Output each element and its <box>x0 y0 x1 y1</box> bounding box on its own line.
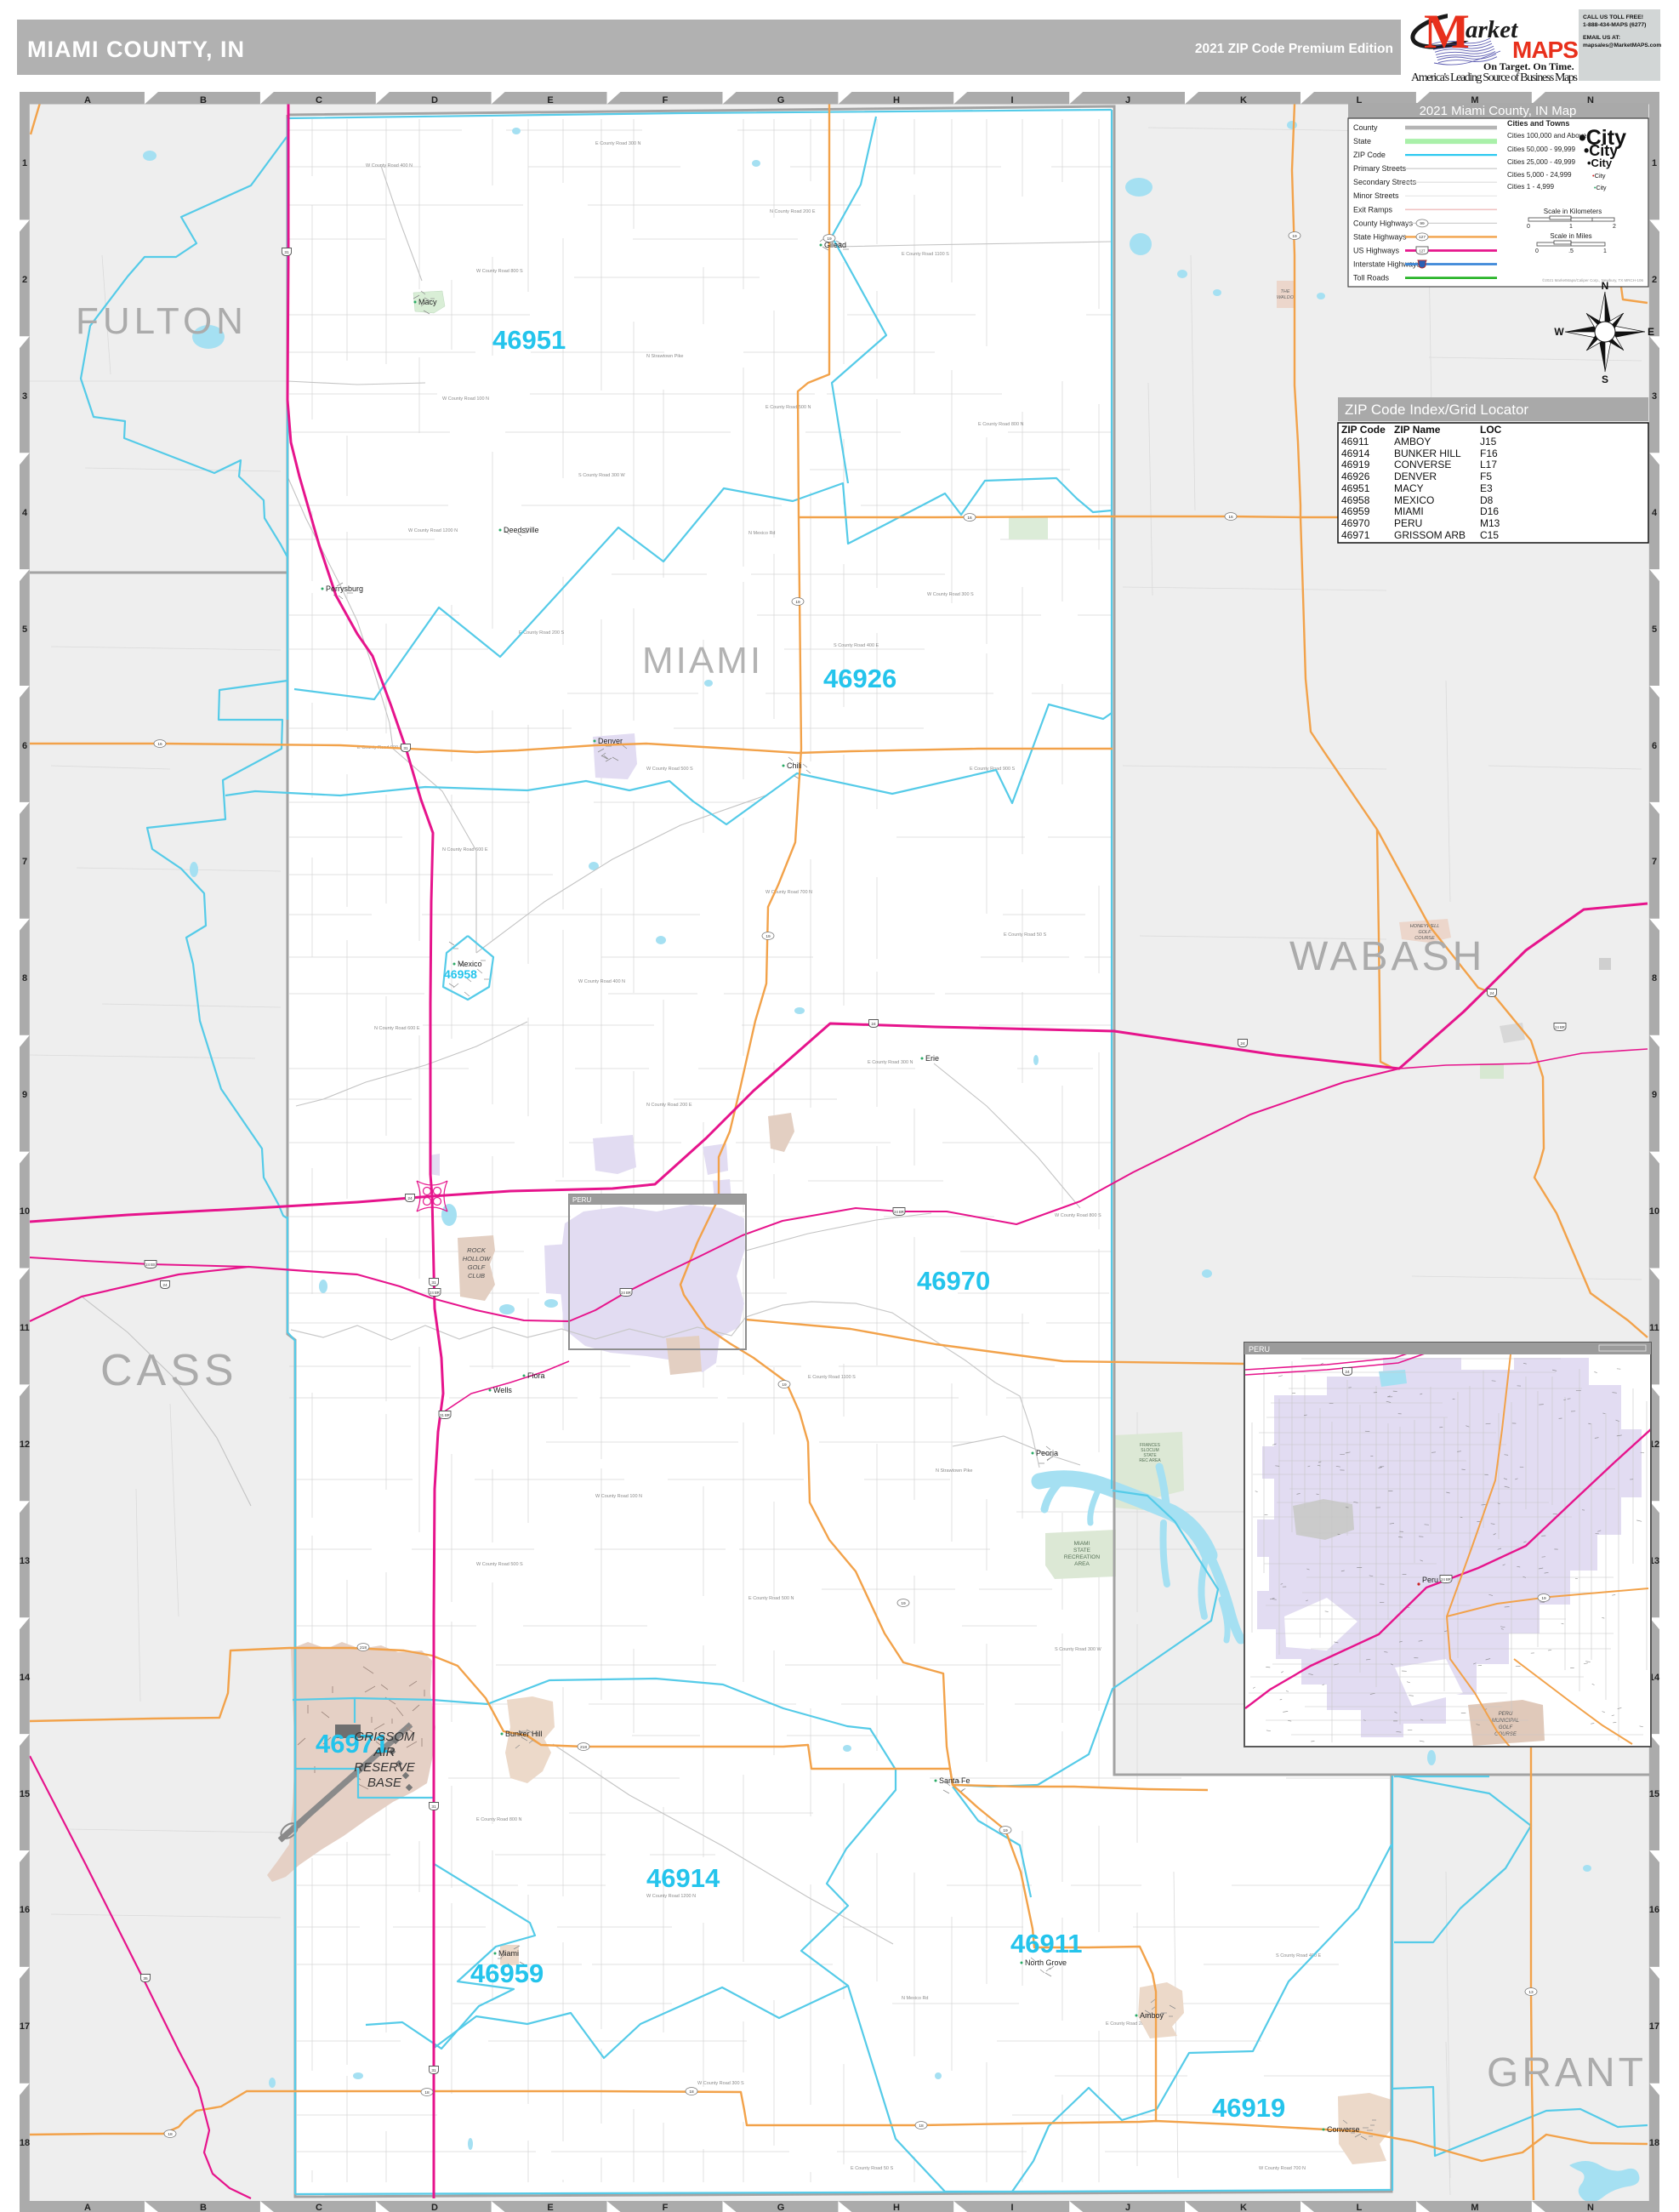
svg-text:A: A <box>84 95 91 105</box>
svg-text:46919: 46919 <box>1212 2093 1285 2123</box>
svg-text:13: 13 <box>20 1556 30 1566</box>
svg-text:G: G <box>777 2203 785 2212</box>
svg-text:24 BR: 24 BR <box>1441 1577 1451 1582</box>
svg-text:W County Road 100 N: W County Road 100 N <box>442 396 489 402</box>
svg-text:19: 19 <box>766 934 771 939</box>
svg-text:WALDO: WALDO <box>1277 295 1295 300</box>
svg-text:•City: •City <box>1587 157 1613 169</box>
svg-text:E County Road 50 S: E County Road 50 S <box>851 2166 893 2171</box>
svg-text:Minor Streets: Minor Streets <box>1353 191 1399 200</box>
svg-text:BUNKER HILL: BUNKER HILL <box>1394 448 1461 459</box>
svg-text:US Highways: US Highways <box>1353 247 1400 255</box>
svg-text:E County Road 300 N: E County Road 300 N <box>595 141 641 146</box>
svg-text:THE: THE <box>1281 289 1290 294</box>
svg-text:W County Road 500 S: W County Road 500 S <box>476 1562 523 1567</box>
svg-text:N County Road 200 E: N County Road 200 E <box>770 209 816 214</box>
svg-text:REC AREA: REC AREA <box>1139 1458 1161 1463</box>
svg-text:46911: 46911 <box>1341 436 1369 448</box>
svg-text:17: 17 <box>1649 2021 1659 2032</box>
svg-text:G: G <box>777 95 785 105</box>
svg-text:18: 18 <box>168 2132 173 2137</box>
svg-text:Mexico: Mexico <box>458 960 482 968</box>
svg-text:1: 1 <box>1652 158 1657 168</box>
svg-text:Cities and Towns: Cities and Towns <box>1507 119 1569 128</box>
svg-text:.5: .5 <box>1568 248 1574 254</box>
svg-text:24: 24 <box>407 1196 413 1201</box>
svg-text:14: 14 <box>20 1673 31 1683</box>
svg-text:3: 3 <box>1652 391 1657 402</box>
svg-text:J: J <box>1125 95 1130 105</box>
svg-text:19: 19 <box>1292 234 1297 239</box>
svg-text:W County Road 700 N: W County Road 700 N <box>766 890 812 895</box>
svg-text:4: 4 <box>1652 508 1658 518</box>
svg-text:19: 19 <box>795 600 800 605</box>
svg-text:W County Road 100 N: W County Road 100 N <box>595 1494 642 1499</box>
svg-text:ZIP Name: ZIP Name <box>1394 424 1441 436</box>
svg-text:GRISSOM: GRISSOM <box>355 1730 415 1744</box>
svg-text:46951: 46951 <box>492 325 566 355</box>
svg-text:31: 31 <box>431 1804 436 1810</box>
svg-text:Scale in Miles: Scale in Miles <box>1550 232 1591 240</box>
svg-text:1: 1 <box>22 158 27 168</box>
svg-text:E County Road 800 N: E County Road 800 N <box>978 422 1024 427</box>
svg-text:8: 8 <box>1652 973 1657 983</box>
svg-text:Denver: Denver <box>598 737 623 745</box>
svg-text:2: 2 <box>1613 224 1616 230</box>
svg-text:0: 0 <box>1535 248 1539 254</box>
svg-text:C15: C15 <box>1480 529 1499 541</box>
svg-text:31: 31 <box>431 1280 436 1286</box>
svg-text:C: C <box>316 2203 322 2212</box>
svg-text:46951: 46951 <box>1341 482 1370 494</box>
svg-text:Macy: Macy <box>418 298 437 306</box>
svg-text:46970: 46970 <box>917 1266 990 1296</box>
svg-text:19: 19 <box>901 1601 906 1606</box>
svg-text:6: 6 <box>22 741 27 751</box>
svg-text:WABASH: WABASH <box>1289 934 1485 979</box>
svg-text:A: A <box>84 2203 91 2212</box>
svg-text:Peru: Peru <box>1422 1576 1438 1584</box>
svg-text:18: 18 <box>1649 2138 1659 2148</box>
svg-text:46971: 46971 <box>1341 529 1370 541</box>
svg-text:24 BR: 24 BR <box>1555 1025 1565 1029</box>
svg-text:W County Road 500 S: W County Road 500 S <box>646 767 693 772</box>
svg-text:S County Road 300 W: S County Road 300 W <box>578 473 626 478</box>
svg-text:ZIP Code: ZIP Code <box>1353 151 1386 159</box>
svg-text:35: 35 <box>143 1976 148 1981</box>
svg-text:10: 10 <box>1649 1206 1659 1217</box>
svg-text:N County Road 200 E: N County Road 200 E <box>646 1103 692 1108</box>
svg-text:N: N <box>1587 2203 1594 2212</box>
svg-text:16: 16 <box>1228 515 1233 520</box>
svg-text:24 BR: 24 BR <box>621 1291 631 1295</box>
svg-text:16: 16 <box>157 742 162 747</box>
svg-text:Amboy: Amboy <box>1140 2011 1164 2020</box>
svg-text:B: B <box>200 95 207 105</box>
svg-text:W: W <box>1554 326 1564 338</box>
svg-text:Chili: Chili <box>787 761 802 770</box>
svg-text:5: 5 <box>22 624 27 635</box>
svg-text:D16: D16 <box>1480 505 1499 517</box>
svg-text:E County Road 50 S: E County Road 50 S <box>1004 932 1046 938</box>
svg-text:31: 31 <box>284 250 289 255</box>
svg-text:W County Road 300 S: W County Road 300 S <box>697 2081 744 2086</box>
svg-text:24: 24 <box>1489 991 1494 996</box>
svg-text:AIR: AIR <box>373 1745 395 1759</box>
svg-text:BASE: BASE <box>367 1776 402 1790</box>
svg-text:K: K <box>1240 95 1247 105</box>
svg-text:MACY: MACY <box>1394 482 1424 494</box>
svg-text:W County Road 1200 N: W County Road 1200 N <box>646 1894 696 1899</box>
svg-text:46911: 46911 <box>1010 1929 1083 1958</box>
svg-text:•City: •City <box>1592 172 1606 180</box>
svg-text:North Grove: North Grove <box>1025 1958 1067 1967</box>
svg-text:J15: J15 <box>1480 436 1497 448</box>
svg-text:N: N <box>1602 280 1609 292</box>
svg-text:E County Road 300 N: E County Road 300 N <box>868 1060 913 1065</box>
svg-text:Bunker Hill: Bunker Hill <box>505 1730 543 1738</box>
svg-text:E County Road 800 N: E County Road 800 N <box>476 1817 522 1822</box>
svg-text:MIAMI: MIAMI <box>642 640 763 681</box>
svg-text:Perrysburg: Perrysburg <box>326 584 363 593</box>
svg-text:PERU: PERU <box>572 1196 591 1204</box>
svg-text:HOLLOW: HOLLOW <box>463 1255 491 1263</box>
svg-text:E County Road 500 N: E County Road 500 N <box>766 405 811 410</box>
svg-text:46926: 46926 <box>1341 470 1370 482</box>
svg-text:24 BR: 24 BR <box>894 1210 904 1214</box>
svg-text:D: D <box>431 95 438 105</box>
svg-text:1: 1 <box>1603 248 1607 254</box>
svg-text:GOLF: GOLF <box>468 1263 486 1271</box>
svg-text:E: E <box>1648 326 1654 338</box>
svg-text:D: D <box>431 2203 438 2212</box>
svg-text:CALL US TOLL FREE!: CALL US TOLL FREE! <box>1583 14 1643 20</box>
svg-text:4: 4 <box>22 508 28 518</box>
svg-text:S County Road 300 W: S County Road 300 W <box>1055 1647 1102 1652</box>
svg-text:L17: L17 <box>1480 459 1497 470</box>
svg-text:•City: •City <box>1594 185 1607 191</box>
svg-text:18: 18 <box>689 2089 694 2095</box>
svg-text:2021 Miami County, IN Map: 2021 Miami County, IN Map <box>1420 104 1577 118</box>
svg-text:Wells: Wells <box>493 1386 512 1394</box>
svg-text:127: 127 <box>1420 248 1426 253</box>
svg-text:10: 10 <box>20 1206 30 1217</box>
svg-text:24: 24 <box>1240 1041 1245 1046</box>
svg-text:GRANT: GRANT <box>1487 2050 1647 2095</box>
svg-text:MIAMI: MIAMI <box>1394 505 1424 517</box>
svg-text:46958: 46958 <box>444 967 477 981</box>
svg-text:F: F <box>663 95 669 105</box>
svg-text:STATE: STATE <box>1073 1548 1091 1554</box>
svg-text:F16: F16 <box>1480 448 1498 459</box>
svg-text:RECREATION: RECREATION <box>1064 1554 1100 1560</box>
svg-text:MUNICIPAL: MUNICIPAL <box>1492 1719 1519 1724</box>
svg-text:16: 16 <box>1649 1905 1659 1915</box>
svg-text:mapsales@MarketMAPS.com: mapsales@MarketMAPS.com <box>1583 43 1661 48</box>
svg-text:D8: D8 <box>1480 494 1494 506</box>
svg-text:C: C <box>316 95 322 105</box>
svg-text:F: F <box>663 2203 669 2212</box>
svg-text:Deedsville: Deedsville <box>504 526 539 534</box>
svg-text:24 BS: 24 BS <box>145 1263 156 1267</box>
svg-text:46959: 46959 <box>1341 505 1370 517</box>
svg-text:46926: 46926 <box>823 664 896 693</box>
svg-text:E County Road 1100 S: E County Road 1100 S <box>808 1375 856 1380</box>
svg-text:Flora: Flora <box>527 1371 545 1380</box>
svg-text:Miami: Miami <box>498 1949 519 1958</box>
svg-text:7: 7 <box>22 857 27 867</box>
svg-text:N County Road 600 E: N County Road 600 E <box>374 1026 420 1031</box>
svg-text:Primary Streets: Primary Streets <box>1353 164 1407 173</box>
svg-text:J: J <box>1125 2203 1130 2212</box>
svg-text:7: 7 <box>1652 857 1657 867</box>
svg-text:46958: 46958 <box>1341 494 1370 506</box>
svg-text:15: 15 <box>20 1789 30 1799</box>
svg-text:1: 1 <box>1569 224 1573 230</box>
svg-text:PERU: PERU <box>1499 1712 1513 1717</box>
svg-text:H: H <box>893 95 900 105</box>
svg-text:218: 218 <box>360 1645 367 1650</box>
svg-text:16: 16 <box>967 516 972 521</box>
svg-text:46914: 46914 <box>1341 448 1370 459</box>
svg-text:19: 19 <box>1541 1596 1546 1601</box>
svg-text:State: State <box>1353 137 1371 145</box>
svg-text:11: 11 <box>1649 1323 1659 1333</box>
svg-text:HONEYWELL: HONEYWELL <box>1410 924 1440 929</box>
svg-text:Exit Ramps: Exit Ramps <box>1353 205 1393 214</box>
svg-text:ZIP Code Index/Grid Locator: ZIP Code Index/Grid Locator <box>1345 402 1528 418</box>
svg-text:MEXICO: MEXICO <box>1394 494 1434 506</box>
svg-text:MAPS: MAPS <box>1512 37 1578 63</box>
svg-text:W County Road 800 S: W County Road 800 S <box>476 269 523 274</box>
svg-text:99: 99 <box>1420 221 1425 226</box>
svg-text:S County Road 400 E: S County Road 400 E <box>834 643 879 648</box>
svg-text:8: 8 <box>22 973 27 983</box>
svg-text:9: 9 <box>22 1090 27 1100</box>
svg-text:E County Road 500 N: E County Road 500 N <box>748 1596 794 1601</box>
svg-text:6: 6 <box>1652 741 1657 751</box>
svg-text:E: E <box>547 95 553 105</box>
svg-text:31: 31 <box>431 2068 436 2073</box>
svg-text:0: 0 <box>1527 224 1530 230</box>
svg-text:America's Leading Source of B: America's Leading Source of Business Map… <box>1411 71 1578 84</box>
svg-text:ZIP Code: ZIP Code <box>1341 424 1386 436</box>
svg-text:MIAMI: MIAMI <box>1074 1541 1090 1547</box>
svg-text:Gilead: Gilead <box>824 241 846 249</box>
svg-text:F5: F5 <box>1480 470 1492 482</box>
svg-text:K: K <box>1240 2203 1247 2212</box>
svg-text:5: 5 <box>1652 624 1657 635</box>
svg-text:12: 12 <box>20 1440 30 1450</box>
svg-text:13: 13 <box>1528 1990 1534 1995</box>
svg-text:E County Road 1100 S: E County Road 1100 S <box>902 252 949 257</box>
svg-text:GOLF: GOLF <box>1499 1725 1513 1730</box>
svg-text:31 BR: 31 BR <box>440 1413 450 1417</box>
svg-text:PERU: PERU <box>1249 1345 1270 1354</box>
svg-text:I: I <box>1010 2203 1013 2212</box>
svg-text:arket: arket <box>1466 16 1518 43</box>
svg-text:GRISSOM ARB: GRISSOM ARB <box>1394 529 1466 541</box>
svg-text:9: 9 <box>1652 1090 1657 1100</box>
svg-text:E3: E3 <box>1480 482 1493 494</box>
svg-text:PERU: PERU <box>1394 517 1422 529</box>
svg-text:3: 3 <box>22 391 27 402</box>
svg-text:24 BR: 24 BR <box>430 1291 440 1295</box>
svg-text:127: 127 <box>1419 235 1426 240</box>
svg-text:46970: 46970 <box>1341 517 1370 529</box>
svg-text:Cities 25,000 - 49,999: Cities 25,000 - 49,999 <box>1507 158 1576 166</box>
svg-text:LOC: LOC <box>1480 424 1502 436</box>
svg-text:Cities 100,000 and Above: Cities 100,000 and Above <box>1507 132 1587 140</box>
svg-text:2021 ZIP Code Premium Edition: 2021 ZIP Code Premium Edition <box>1195 42 1393 56</box>
svg-text:E: E <box>547 2203 553 2212</box>
svg-text:N Strawtown Pike: N Strawtown Pike <box>646 354 683 359</box>
svg-text:W County Road 300 S: W County Road 300 S <box>927 592 974 597</box>
svg-text:On Target. On Time.: On Target. On Time. <box>1483 60 1574 72</box>
svg-text:DENVER: DENVER <box>1394 470 1437 482</box>
svg-text:L: L <box>1357 2203 1363 2212</box>
svg-text:W County Road 400 N: W County Road 400 N <box>366 163 413 168</box>
svg-text:E County Road 200 S: E County Road 200 S <box>519 630 565 636</box>
svg-text:Santa Fe: Santa Fe <box>939 1776 970 1785</box>
svg-text:Scale in Kilometers: Scale in Kilometers <box>1544 208 1602 215</box>
svg-text:11: 11 <box>20 1323 30 1333</box>
svg-text:2: 2 <box>22 275 27 285</box>
svg-text:18: 18 <box>919 2124 924 2129</box>
svg-text:Cities 1 - 4,999: Cities 1 - 4,999 <box>1507 183 1555 191</box>
svg-text:Cities 5,000 - 24,999: Cities 5,000 - 24,999 <box>1507 171 1572 179</box>
svg-text:B: B <box>200 2203 207 2212</box>
svg-text:46959: 46959 <box>470 1958 544 1988</box>
svg-text:ROCK: ROCK <box>467 1246 487 1254</box>
svg-text:M: M <box>1424 5 1470 59</box>
svg-text:16: 16 <box>20 1905 30 1915</box>
svg-text:W County Road 400 N: W County Road 400 N <box>578 979 625 984</box>
svg-text:19: 19 <box>782 1382 787 1388</box>
svg-text:15: 15 <box>1649 1789 1659 1799</box>
svg-text:W County Road 1200 N: W County Road 1200 N <box>408 528 458 533</box>
svg-text:CONVERSE: CONVERSE <box>1394 459 1451 470</box>
svg-text:17: 17 <box>20 2021 30 2032</box>
svg-text:County: County <box>1353 123 1378 132</box>
svg-text:31: 31 <box>403 746 408 751</box>
svg-text:24: 24 <box>162 1283 168 1288</box>
svg-text:MIAMI COUNTY, IN: MIAMI COUNTY, IN <box>27 37 245 62</box>
svg-text:©2021 MarketMaps/Caliper Corp.: ©2021 MarketMaps/Caliper Corp., Newbury,… <box>1542 277 1643 282</box>
svg-text:W County Road 800 S: W County Road 800 S <box>1055 1213 1101 1218</box>
svg-text:18: 18 <box>424 2090 430 2095</box>
svg-text:EMAIL US AT:: EMAIL US AT: <box>1583 35 1620 41</box>
svg-text:46919: 46919 <box>1341 459 1370 470</box>
svg-text:N Strawtown Pike: N Strawtown Pike <box>936 1468 972 1474</box>
svg-text:Cities 50,000 - 99,999: Cities 50,000 - 99,999 <box>1507 145 1576 153</box>
svg-text:N Mexico Rd: N Mexico Rd <box>902 1996 928 2001</box>
svg-text:CASS: CASS <box>100 1346 238 1395</box>
svg-text:I: I <box>1010 95 1013 105</box>
svg-text:24: 24 <box>1345 1370 1350 1375</box>
svg-text:AMBOY: AMBOY <box>1394 436 1431 448</box>
svg-text:46914: 46914 <box>646 1863 720 1893</box>
svg-text:N County Road 600 E: N County Road 600 E <box>442 847 488 852</box>
svg-text:H: H <box>893 2203 900 2212</box>
svg-text:S: S <box>1602 373 1608 385</box>
svg-text:CLUB: CLUB <box>468 1272 485 1280</box>
svg-text:M13: M13 <box>1480 517 1500 529</box>
svg-text:19: 19 <box>1003 1828 1008 1833</box>
svg-text:State Highways: State Highways <box>1353 232 1407 241</box>
svg-text:RESERVE: RESERVE <box>354 1760 415 1775</box>
svg-text:Erie: Erie <box>925 1054 939 1063</box>
svg-text:2: 2 <box>1652 275 1657 285</box>
svg-text:24: 24 <box>871 1022 876 1027</box>
svg-text:N Mexico Rd: N Mexico Rd <box>748 531 775 536</box>
svg-text:Toll Roads: Toll Roads <box>1353 274 1390 282</box>
svg-text:M: M <box>1471 2203 1478 2212</box>
svg-text:AREA: AREA <box>1074 1561 1090 1567</box>
svg-text:218: 218 <box>580 1745 587 1750</box>
svg-text:1-888-434-MAPS (6277): 1-888-434-MAPS (6277) <box>1583 22 1646 28</box>
svg-text:18: 18 <box>20 2138 30 2148</box>
svg-text:Peoria: Peoria <box>1036 1449 1058 1457</box>
svg-text:W County Road 700 N: W County Road 700 N <box>1259 2166 1306 2171</box>
svg-text:FULTON: FULTON <box>76 300 248 342</box>
svg-text:County Highways: County Highways <box>1353 219 1414 227</box>
svg-text:Converse: Converse <box>1327 2125 1360 2134</box>
